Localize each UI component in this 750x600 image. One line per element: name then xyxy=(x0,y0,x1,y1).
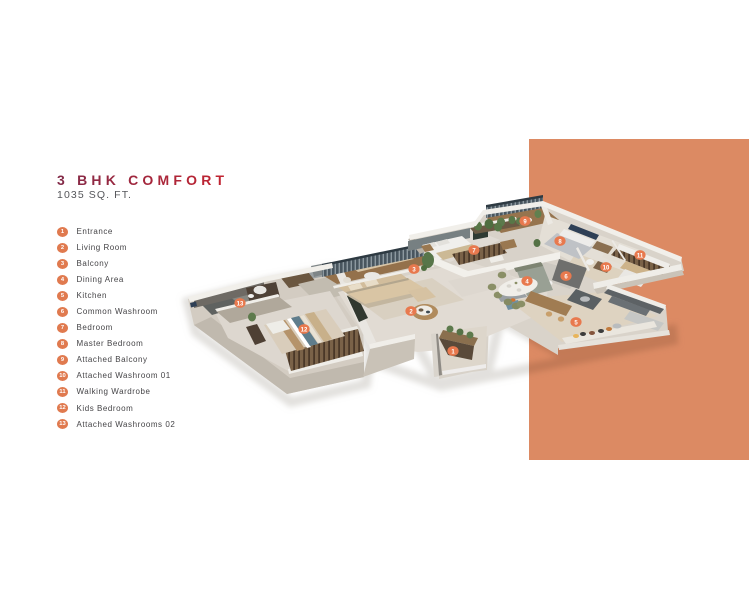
svg-text:11: 11 xyxy=(637,254,644,260)
svg-text:10: 10 xyxy=(603,266,610,272)
svg-text:13: 13 xyxy=(237,302,244,308)
svg-text:12: 12 xyxy=(301,328,308,334)
